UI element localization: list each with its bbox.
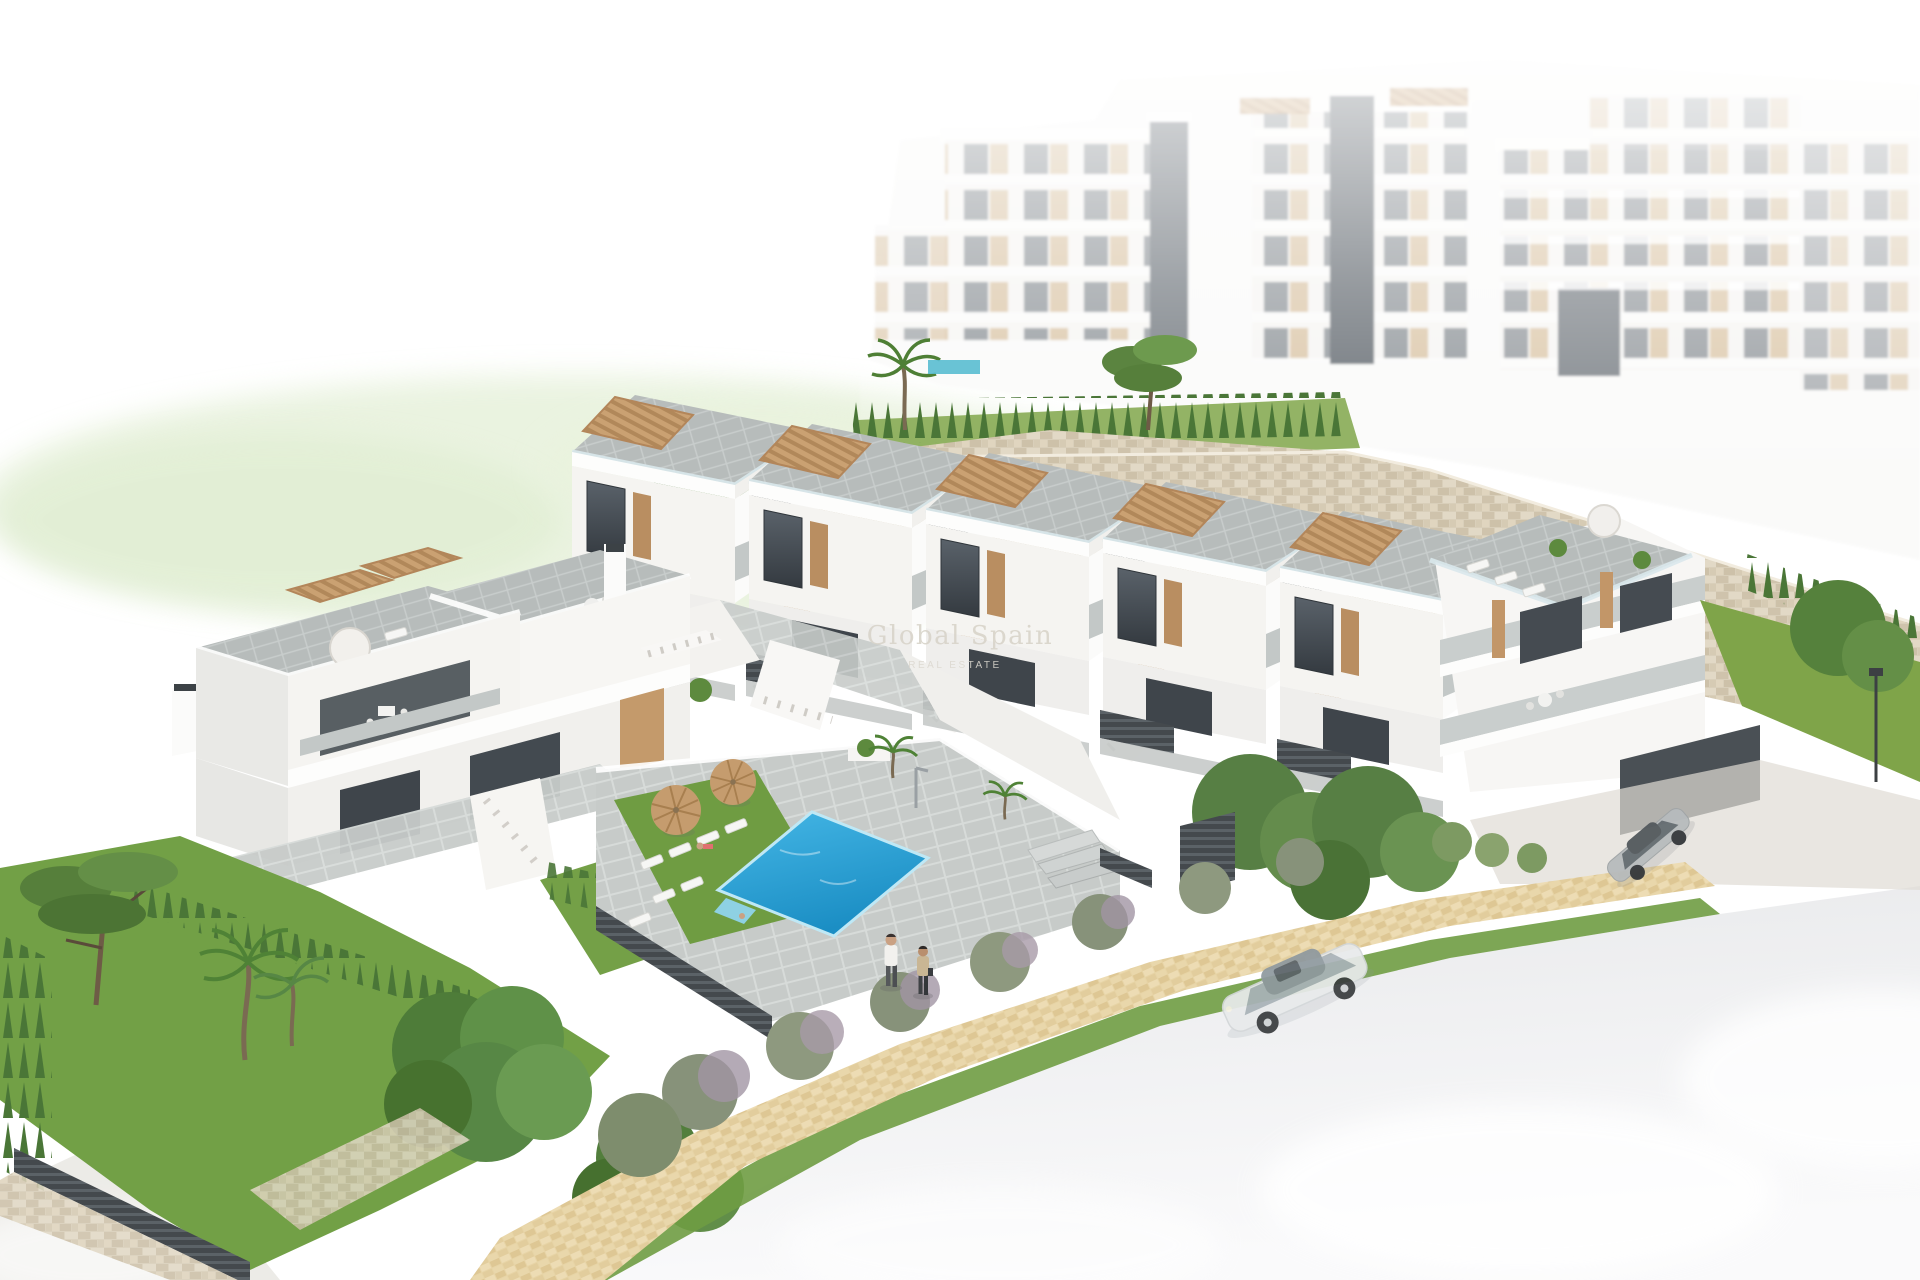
architectural-render: Global Spain REAL ESTATE <box>0 0 1920 1280</box>
render-canvas: Global Spain REAL ESTATE <box>0 0 1920 1280</box>
watermark-tagline: REAL ESTATE <box>908 660 1001 671</box>
upper-pool-glimpse <box>928 360 980 374</box>
roof-parasol <box>1588 505 1620 537</box>
child-in-pool <box>739 913 745 919</box>
watermark-brand: Global Spain <box>867 621 1053 651</box>
